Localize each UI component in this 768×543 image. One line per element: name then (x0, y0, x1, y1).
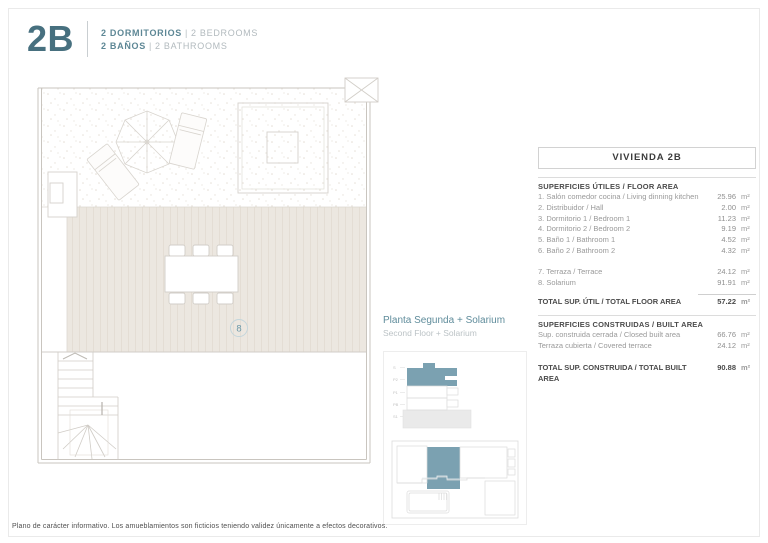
staircase (58, 352, 118, 460)
building-section-diagram: S P2 P1 PB S1 (393, 358, 519, 436)
shaft-cross-icon (345, 78, 378, 102)
header-divider (87, 21, 88, 57)
dining-table (165, 245, 238, 304)
unit-header: 2B 2 DORMITORIOS|2 BEDROOMS 2 BAÑOS|2 BA… (27, 21, 258, 57)
svg-text:PB: PB (393, 402, 399, 407)
bathrooms-line: 2 BAÑOS|2 BATHROOMS (101, 41, 258, 51)
site-highlight-unit (427, 447, 460, 489)
floor-plan: 8 (30, 75, 380, 475)
total-floor-area-row: TOTAL SUP. ÚTIL / TOTAL FLOOR AREA57.22m… (538, 297, 756, 308)
table-row: 4. Dormitorio 2 / Bedroom 29.19m² (538, 224, 756, 235)
location-title-es: Planta Segunda + Solarium (383, 315, 505, 328)
useful-area-heading: SUPERFICIES ÚTILES / FLOOR AREA (538, 177, 756, 192)
unit-code: 2B (27, 21, 74, 57)
location-title-en: Second Floor + Solarium (383, 328, 505, 339)
disclaimer-text: Plano de carácter informativo. Los amueb… (12, 523, 387, 530)
svg-text:P2: P2 (393, 377, 399, 382)
location-label: Planta Segunda + Solarium Second Floor +… (383, 315, 505, 338)
total-rule (698, 294, 756, 295)
parasol-icon (116, 111, 178, 173)
table-row: Sup. construida cerrada / Closed built a… (538, 330, 756, 341)
section-highlight-unit (407, 363, 457, 386)
table-row: 1. Salón comedor cocina / Living dinning… (538, 192, 756, 203)
table-title: VIVIENDA 2B (538, 147, 756, 169)
total-built-area-row: TOTAL SUP. CONSTRUIDA / TOTAL BUILT AREA… (538, 363, 756, 385)
svg-text:P1: P1 (393, 390, 399, 395)
table-row: 5. Baño 1 / Bathroom 14.52m² (538, 235, 756, 246)
svg-text:8: 8 (236, 324, 241, 335)
table-row: 3. Dormitorio 1 / Bedroom 111.23m² (538, 214, 756, 225)
built-area-heading: SUPERFICIES CONSTRUIDAS / BUILT AREA (538, 315, 756, 330)
section-lower-floors (407, 386, 458, 410)
site-plan-diagram (389, 438, 521, 521)
table-row: Terraza cubierta / Covered terrace24.12m… (538, 341, 756, 352)
location-diagrams-box: S P2 P1 PB S1 (383, 351, 527, 525)
table-row: 2. Distribuidor / Hall2.00m² (538, 203, 756, 214)
section-base-podium (403, 410, 471, 428)
svg-text:S: S (393, 365, 396, 370)
table-row: 6. Baño 2 / Bathroom 24.32m² (538, 246, 756, 257)
table-row: 7. Terraza / Terrace24.12m² (538, 267, 756, 278)
table-row: 8. Solarium91.91m² (538, 278, 756, 289)
bedrooms-line: 2 DORMITORIOS|2 BEDROOMS (101, 28, 258, 38)
areas-table: VIVIENDA 2B SUPERFICIES ÚTILES / FLOOR A… (538, 147, 756, 384)
left-service-box (48, 172, 77, 217)
svg-text:S1: S1 (393, 414, 399, 419)
